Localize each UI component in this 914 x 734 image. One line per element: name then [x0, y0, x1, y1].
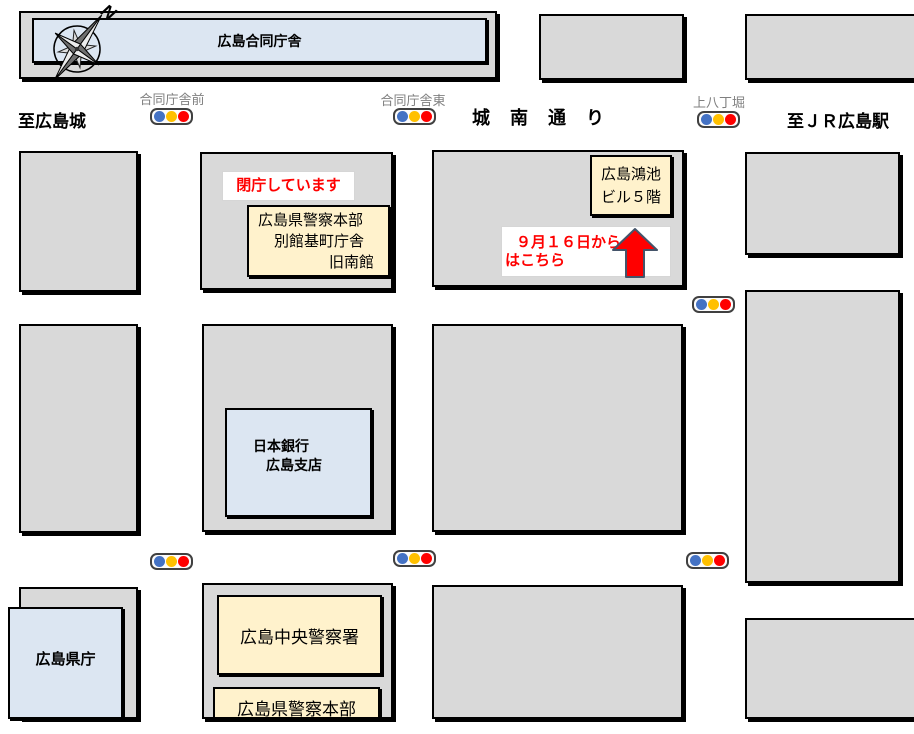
- bank-line2: 広島支店: [227, 456, 370, 475]
- road-label-to-jr-hiroshima-station: 至ＪＲ広島駅: [787, 107, 889, 132]
- signal-yellow-lamp: [409, 553, 420, 564]
- signal-blue-lamp: [701, 114, 712, 125]
- signal-red-lamp: [178, 111, 189, 122]
- signal-red-lamp: [178, 556, 189, 567]
- city-block-bottom-right: [745, 618, 914, 719]
- signal-blue-lamp: [154, 556, 165, 567]
- signal-red-lamp: [421, 111, 432, 122]
- building-police-hq: 広島県警察本部: [213, 687, 380, 719]
- signal-red-lamp: [725, 114, 736, 125]
- signal-blue-lamp: [154, 111, 165, 122]
- building-konoike: 広島鴻池 ビル５階: [590, 155, 672, 216]
- city-block-row3-right: [745, 290, 900, 583]
- signal-blue-lamp: [696, 299, 707, 310]
- compass-north-label: N: [97, 1, 118, 25]
- traffic-signal-south-west: [150, 553, 193, 570]
- city-block-top-middle: [539, 14, 684, 80]
- city-block-row2-right: [745, 152, 900, 255]
- city-block-row2-left: [19, 151, 138, 292]
- signal-yellow-lamp: [166, 111, 177, 122]
- signal-yellow-lamp: [166, 556, 177, 567]
- building-bank-of-japan: 日本銀行 広島支店: [225, 408, 372, 517]
- building-prefecture-office: 広島県庁: [8, 607, 123, 719]
- compass-rose-icon: N: [34, 1, 118, 93]
- old-annex-line2: 別館基町庁舎: [249, 231, 388, 252]
- traffic-signal-kami-hatchobori: [697, 111, 740, 128]
- bank-line1: 日本銀行: [227, 437, 370, 456]
- signal-yellow-lamp: [702, 555, 713, 566]
- police-hq-label: 広島県警察本部: [237, 700, 356, 719]
- city-block-bottom-middle-right: [432, 585, 683, 719]
- building-godochosha-label: 広島合同庁舎: [218, 31, 302, 51]
- building-central-police: 広島中央警察署: [217, 595, 382, 675]
- signal-yellow-lamp: [708, 299, 719, 310]
- traffic-signal-godochosha-higashi: [393, 108, 436, 125]
- central-police-label: 広島中央警察署: [240, 623, 359, 648]
- signal-red-lamp: [720, 299, 731, 310]
- traffic-signal-godochosha-mae: [150, 108, 193, 125]
- signal-blue-lamp: [397, 111, 408, 122]
- closed-notice: 閉庁しています: [222, 171, 355, 201]
- signal-label-godochosha-higashi: 合同庁舎東: [377, 90, 449, 109]
- prefecture-office-label: 広島県庁: [35, 648, 95, 669]
- closed-notice-label: 閉庁しています: [236, 177, 341, 194]
- building-old-annex: 広島県警察本部 別館基町庁舎 旧南館: [247, 205, 390, 277]
- signal-blue-lamp: [690, 555, 701, 566]
- road-label-to-hiroshima-castle: 至広島城: [18, 107, 86, 132]
- old-annex-line3: 旧南館: [249, 252, 388, 273]
- konoike-line2: ビル５階: [592, 186, 670, 209]
- old-annex-line1: 広島県警察本部: [249, 210, 388, 231]
- signal-blue-lamp: [397, 553, 408, 564]
- signal-label-kami-hatchobori: 上八丁堀: [688, 92, 750, 111]
- signal-yellow-lamp: [409, 111, 420, 122]
- city-block-row3-left: [19, 324, 138, 533]
- traffic-signal-south-middle: [393, 550, 436, 567]
- signal-red-lamp: [421, 553, 432, 564]
- city-block-row3-middle-right: [432, 324, 683, 532]
- access-map: 広島合同庁舎 閉庁しています 広島県警察本部 別館基町庁舎 旧南館 広島鴻池 ビ…: [0, 0, 914, 734]
- traffic-signal-south-east: [686, 552, 729, 569]
- signal-red-lamp: [714, 555, 725, 566]
- city-block-top-right: [745, 14, 914, 80]
- signal-yellow-lamp: [713, 114, 724, 125]
- up-arrow-icon: [611, 227, 659, 279]
- signal-label-godochosha-mae: 合同庁舎前: [136, 89, 208, 108]
- traffic-signal-east-mid: [692, 296, 735, 313]
- konoike-line1: 広島鴻池: [592, 163, 670, 186]
- road-label-jonan-dori: 城 南 通 り: [472, 104, 605, 130]
